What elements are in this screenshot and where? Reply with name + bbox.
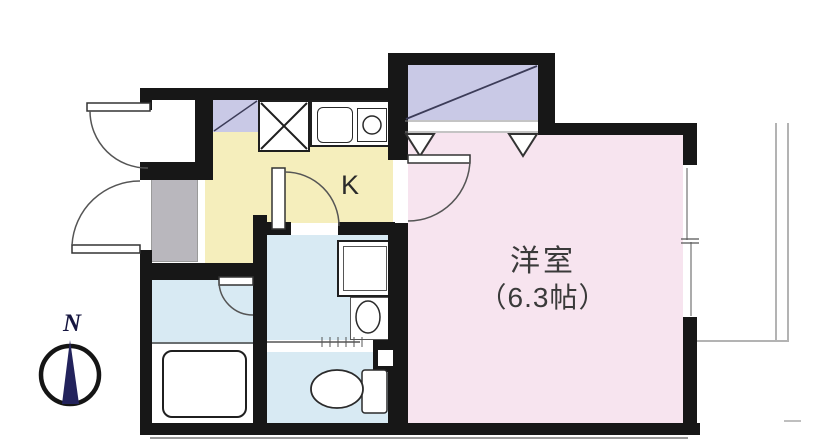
closet-door-track bbox=[405, 120, 538, 133]
wall-kitchen-bottom-left bbox=[253, 222, 291, 235]
bathtub-icon bbox=[162, 350, 247, 418]
storage-door-arc bbox=[90, 111, 148, 168]
wall-right-lower bbox=[683, 317, 697, 435]
vanity-counter bbox=[350, 297, 393, 340]
stove-icon bbox=[357, 108, 387, 142]
wall-top bbox=[140, 88, 393, 100]
entry-door-leaf bbox=[72, 245, 140, 253]
closet-icon bbox=[405, 65, 538, 120]
entry-area bbox=[151, 179, 198, 262]
refrigerator-space-icon bbox=[213, 100, 258, 132]
compass-circle-icon bbox=[41, 346, 99, 404]
floor-plan: 洋室 （6.3帖） K N bbox=[0, 0, 823, 448]
kitchen-sink-icon bbox=[317, 107, 353, 143]
entry-door-arc bbox=[72, 181, 140, 245]
wall-closet-right bbox=[538, 53, 555, 135]
wall-room-left-upper bbox=[388, 53, 408, 160]
bathroom-area bbox=[152, 280, 253, 344]
wall-closet-top bbox=[388, 53, 555, 65]
wall-left-stub bbox=[140, 88, 152, 110]
western-room-label: 洋室 bbox=[448, 236, 638, 280]
wall-entry-bath bbox=[140, 263, 267, 280]
wall-room-top bbox=[555, 123, 697, 135]
compass-north-label: N bbox=[52, 310, 92, 338]
washing-machine-pan-inner bbox=[343, 246, 387, 291]
wall-right-upper bbox=[683, 123, 697, 165]
wall-bottom bbox=[140, 423, 700, 435]
kitchen-label: K bbox=[330, 170, 370, 201]
kitchen-corridor bbox=[205, 180, 253, 263]
range-space-icon bbox=[258, 100, 310, 152]
compass-needle-icon bbox=[62, 340, 79, 404]
pipe-space-icon bbox=[378, 350, 393, 366]
wall-room-left-lower bbox=[388, 223, 408, 423]
western-room-size-label: （6.3帖） bbox=[448, 276, 638, 316]
wall-kitchen-bottom-right bbox=[338, 222, 395, 235]
wall-entry-divider bbox=[140, 162, 213, 180]
wall-bath-right bbox=[253, 215, 267, 435]
toilet-room-area bbox=[267, 352, 388, 423]
